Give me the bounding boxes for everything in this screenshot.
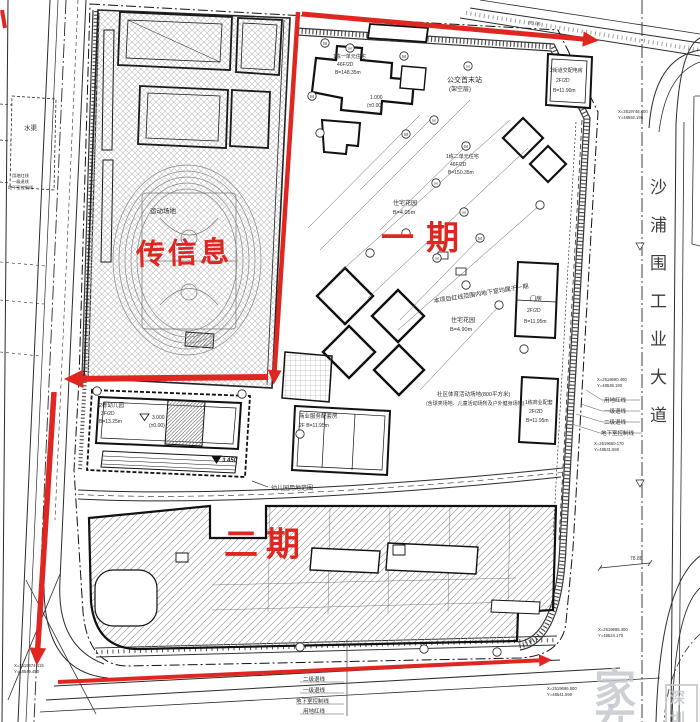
red-annotation-phase2: 二期 <box>224 528 308 562</box>
grid-bubble-letter: M <box>404 132 408 137</box>
label-garden1-level: B=4.05m <box>393 210 416 216</box>
coordinate-label: Y=48524.170 <box>598 633 624 638</box>
label-red-line-left: 用地红线 <box>12 172 30 179</box>
label-level-1000: 1.000 <box>370 95 383 101</box>
label-track: 运动场地 <box>150 206 177 215</box>
label-garden2: 住宅花园 <box>451 316 475 324</box>
label-setback2-right: 二级退线 <box>604 418 627 426</box>
coordinate-label: X=2519695.400 <box>598 627 628 632</box>
label-biz-height: 2F B=11.95m <box>299 423 329 429</box>
label-setback-left: 一级退线 <box>12 178 30 185</box>
grid-bubble-letter: H <box>348 46 351 51</box>
label-tower1: 1栋一单元住宅 <box>333 53 366 60</box>
coordinate-label: X=2519748.400 <box>618 109 648 114</box>
label-red-line-bottom: 用地红线 <box>303 707 326 715</box>
label-basement-line-right: 地下室控制线 <box>601 429 635 437</box>
watermark-badge: 深圳 <box>665 684 698 722</box>
label-gatehouse: 门房 <box>530 295 542 303</box>
label-basement-line-bottom: 地下室控制线 <box>296 697 330 705</box>
coordinate-label: X=2519650.170 <box>594 441 624 446</box>
label-sports-area2: (含球类场地、儿童活动场所及户外健身场地) <box>426 400 525 407</box>
phase2-block <box>89 506 556 649</box>
label-retail: 1栋商业配套 <box>525 399 553 406</box>
grid-bubble-letter: H <box>435 256 438 261</box>
red-arrow-top-diagonal <box>302 14 594 40</box>
grid-bubble-letter: M <box>310 94 314 99</box>
grid-bubble-letter: H <box>432 118 435 123</box>
dimension-8566: 85.66 <box>528 20 541 28</box>
coordinate-label: Y=48536.190 <box>597 383 623 388</box>
label-bus-stop2: (架空层) <box>449 85 471 93</box>
coordinate-label: X=2519674.415 <box>14 663 44 668</box>
red-arrow-left <box>70 377 268 379</box>
label-kindergarten-boundary: 幼儿园用地范围 <box>271 484 313 492</box>
coordinate-label: Y=48541.590 <box>547 692 573 697</box>
grid-bubble-letter: M <box>464 144 468 149</box>
label-level-000: (±0.00) <box>149 423 165 429</box>
label-level-3000: 3.000 <box>152 415 165 421</box>
label-setback1-right: 一级退线 <box>604 407 627 415</box>
site-plan-image: M H M H M M H M H H M H 公交首末站 (架空层) 2街道交… <box>0 0 700 722</box>
coordinate-label: Y=48592.196 <box>618 115 644 120</box>
watermark-brand: 家在 <box>594 672 660 722</box>
road-name-vertical: 沙浦围工业大道 <box>644 178 669 444</box>
label-garden1: 住宅花园 <box>393 199 417 207</box>
label-water-channel: 水渠 <box>24 123 38 132</box>
label-kindergarten-floors: 3F/2D <box>101 411 115 417</box>
label-substation-floors: 2F/2D <box>556 78 570 84</box>
coordinate-label: X=2519696.500 <box>547 686 577 691</box>
grid-bubble-letter: H <box>466 64 469 69</box>
label-tower1-height: B=148.35m <box>335 70 361 76</box>
label-retail-floors: 2F/2D <box>529 409 543 415</box>
label-basement-note: 本项目红线范围内地下室均属于一期 <box>433 282 529 305</box>
watermark: 家在 深圳 bbs.szhome.com <box>594 672 698 722</box>
label-tower2-height: B=150.35m <box>448 170 474 176</box>
label-substation: 2街道交配电房 <box>550 67 583 74</box>
label-bus-stop: 公交首末站 <box>447 75 482 84</box>
label-sports-area: 社区体育活动场地(800平方米) <box>437 390 511 398</box>
label-substation-height: B=11.90m <box>553 88 576 94</box>
label-gatehouse-floors: 2F/2D <box>527 308 541 314</box>
red-annotation-phase1: 一期 <box>381 221 471 254</box>
label-level-3450: 3.450 <box>222 458 238 464</box>
label-setback2-bottom: 二级退线 <box>303 675 326 683</box>
plan-drawing: M H M H M M H M H H M H 公交首末站 (架空层) 2街道交… <box>0 0 700 722</box>
label-tower1-floors: 46F/2D <box>337 62 354 68</box>
label-gatehouse-height: B=11.95m <box>524 319 547 325</box>
red-line-west <box>37 392 54 660</box>
coordinate-label: X=2519690.400 <box>597 377 627 382</box>
grid-bubble-letter: M <box>323 41 327 46</box>
red-annotation-message: 传信息 <box>136 238 233 270</box>
label-level-000b: (±0.00) <box>367 103 383 109</box>
coordinate-label: Y=48531.590 <box>594 447 620 452</box>
grid-bubble-letter: H <box>462 210 465 215</box>
label-tower2: 1栋二单元住宅 <box>446 153 479 160</box>
grid-bubble-letter: M <box>478 236 482 241</box>
label-biz: 商业服务配套房 <box>299 412 338 420</box>
dimension-7888: 78.88 <box>630 556 643 562</box>
label-kindergarten-height: B=13.25m <box>99 419 122 425</box>
red-mark-top-left <box>2 10 5 28</box>
label-retail-height: B=11.95m <box>526 418 549 424</box>
label-red-line-right: 用地红线 <box>604 396 627 404</box>
label-tower2-floors: 46F/2D <box>450 162 467 168</box>
grid-bubble-letter: M <box>402 54 406 59</box>
label-setback1-bottom: 一级退线 <box>303 686 326 694</box>
label-kindergarten: 2栋幼儿园 <box>99 401 125 409</box>
coordinate-label: Y=48549.450 <box>14 669 40 674</box>
label-basement-line-left: 地下室控制线 <box>8 184 34 191</box>
grid-bubble-letter: H <box>434 181 437 186</box>
label-garden2-level: B=4.90m <box>450 327 473 333</box>
